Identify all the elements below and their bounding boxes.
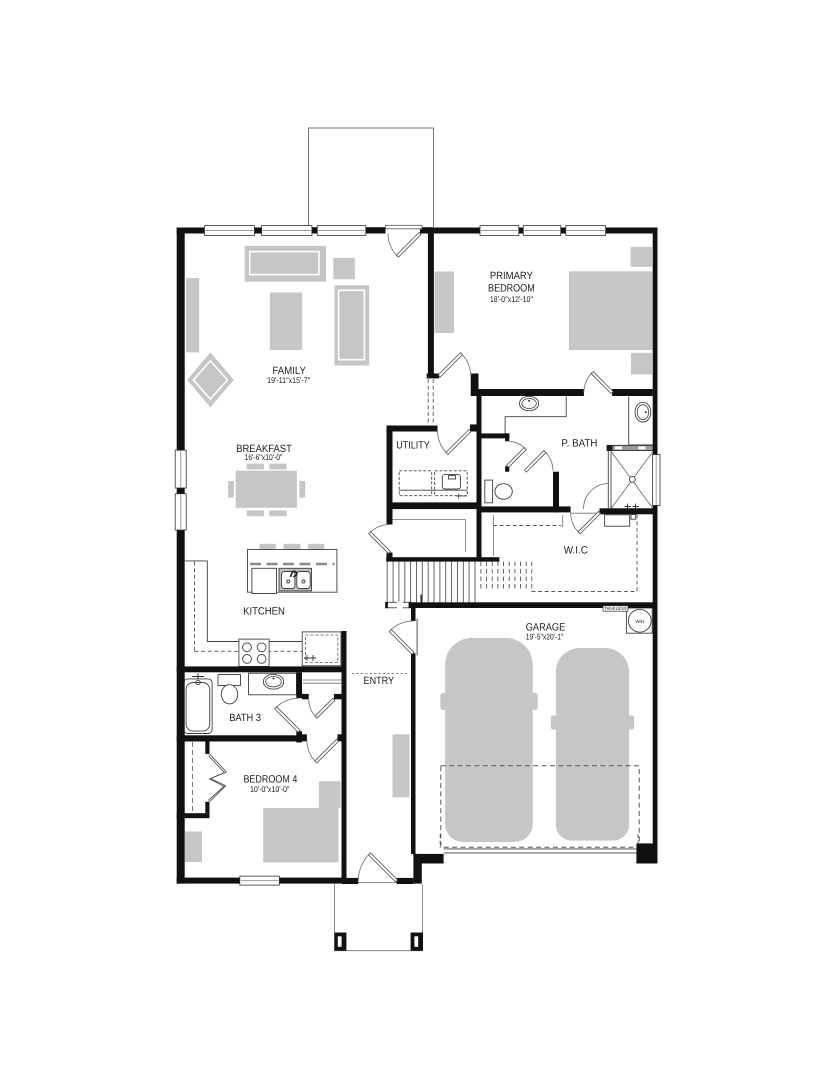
svg-text:W/H: W/H [635, 619, 644, 624]
svg-text:P. BATH: P. BATH [561, 438, 597, 450]
svg-text:W.I.C: W.I.C [564, 544, 589, 556]
svg-text:KITCHEN: KITCHEN [243, 606, 285, 618]
svg-text:BATH 3: BATH 3 [229, 712, 261, 724]
svg-text:UTILITY: UTILITY [396, 440, 430, 452]
svg-text:19'-5"x20'-1": 19'-5"x20'-1" [526, 631, 564, 641]
svg-text:TANKLESS: TANKLESS [604, 606, 627, 611]
svg-text:19'-11"x15'-7": 19'-11"x15'-7" [267, 375, 310, 385]
svg-text:BEDROOM: BEDROOM [488, 282, 535, 294]
svg-text:18'-0"x12'-10": 18'-0"x12'-10" [490, 294, 533, 304]
svg-text:10'-0"x10'-0": 10'-0"x10'-0" [250, 784, 290, 794]
svg-text:ENTRY: ENTRY [364, 675, 395, 687]
svg-text:PRIMARY: PRIMARY [490, 270, 533, 282]
svg-text:16'-6"x10'-0": 16'-6"x10'-0" [245, 452, 283, 462]
